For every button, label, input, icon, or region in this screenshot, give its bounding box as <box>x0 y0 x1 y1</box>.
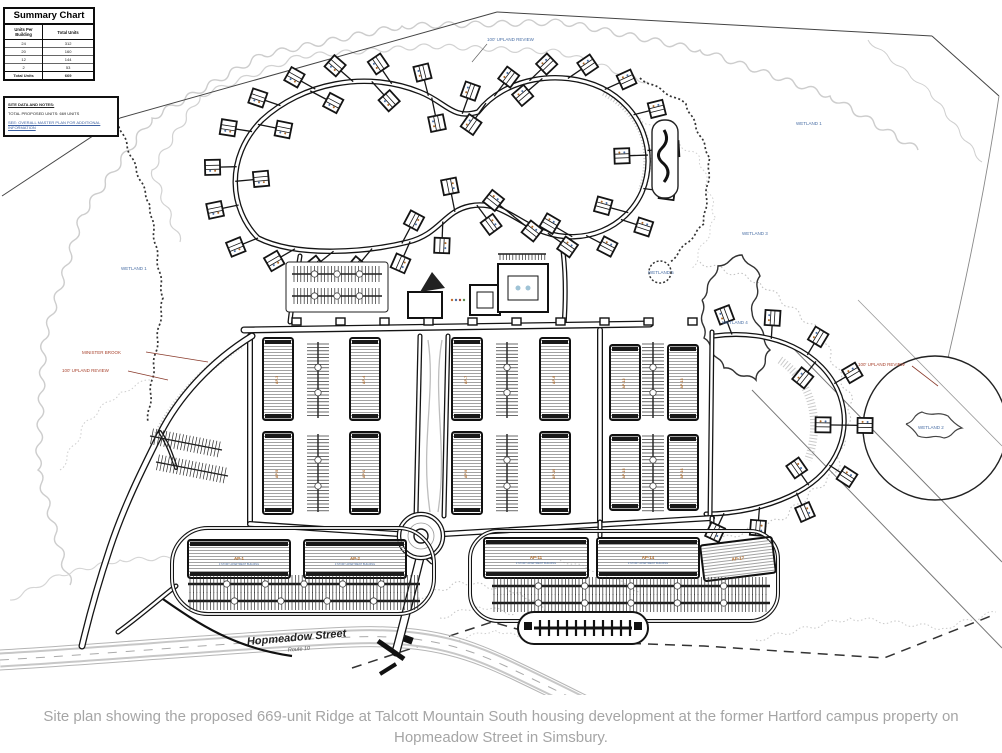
house-footprint <box>634 218 653 237</box>
plan-linework <box>192 436 194 444</box>
plan-linework <box>404 210 424 230</box>
leader-line <box>128 371 168 380</box>
house-footprint <box>275 121 293 139</box>
house-footprint <box>512 85 533 106</box>
main-east-west-road-surface <box>244 324 650 330</box>
plan-linework <box>198 462 200 470</box>
parking-row <box>498 254 546 260</box>
table-cell: 53 <box>43 64 93 72</box>
plan-linework <box>215 466 217 474</box>
plan-linework <box>792 367 813 388</box>
house-footprint <box>413 63 431 81</box>
upland-review-west-label: 100' UPLAND REVIEW <box>62 368 110 373</box>
plan-linework <box>617 70 637 90</box>
apartment-building: AP-4 <box>350 338 380 420</box>
plan-linework <box>170 440 172 448</box>
tree-icon <box>650 457 656 463</box>
property-boundary <box>790 345 1002 562</box>
caption-area: Site plan showing the proposed 669-unit … <box>0 695 1002 753</box>
tree-icon <box>504 483 510 489</box>
tree-icon <box>370 598 376 604</box>
plan-linework <box>599 540 697 544</box>
garage-end <box>524 622 532 630</box>
amenity-lot <box>286 262 388 312</box>
plan-linework <box>670 504 696 508</box>
plan-linework <box>181 459 183 467</box>
house-footprint <box>264 251 284 271</box>
plan-linework <box>454 508 480 512</box>
house-footprint <box>284 67 304 87</box>
col-units-per-building: Units Per Building <box>5 25 43 40</box>
contour-line <box>10 556 170 600</box>
building-sub-label: 3 STORY APARTMENT BUILDING <box>516 561 556 565</box>
plan-linework <box>284 67 304 87</box>
plan-linework <box>612 347 638 351</box>
plan-linework <box>156 462 158 470</box>
plan-linework <box>815 417 830 432</box>
apartment-building: AP-13 <box>668 345 698 420</box>
plan-linework <box>413 63 431 81</box>
plan-linework <box>481 214 502 235</box>
plan-linework <box>614 148 630 164</box>
apartment-building: AP-10 <box>540 432 570 514</box>
parking-row <box>496 342 518 418</box>
plan-linework <box>265 414 291 418</box>
plan-linework <box>206 201 224 219</box>
plan-linework <box>486 540 586 544</box>
plan-linework <box>612 504 638 508</box>
plan-linework <box>169 432 171 440</box>
site-plan-figure: AP-3AP-4AP-5AP-6AP-7AP-8AP-9AP-10AP-12AP… <box>0 0 1002 695</box>
house-footprint <box>795 502 815 522</box>
tree-icon <box>262 581 268 587</box>
garage-end <box>634 622 642 630</box>
tree-icon <box>581 600 587 606</box>
plan-linework <box>205 160 220 175</box>
minister-brook-label: MINISTER BROOK <box>82 350 121 355</box>
plan-linework <box>220 119 237 136</box>
plan-linework <box>323 93 343 113</box>
tree-icon <box>356 271 362 277</box>
turn-lane-mark <box>380 664 396 674</box>
tree-icon <box>301 581 307 587</box>
tree-icon <box>315 483 321 489</box>
plan-linework <box>795 502 815 522</box>
table-cell: 144 <box>43 56 93 64</box>
table-cell: 12 <box>5 56 43 64</box>
house-footprint <box>617 70 637 90</box>
plan-linework <box>166 464 168 472</box>
house-footprint <box>594 197 612 215</box>
plan-linework <box>174 441 176 449</box>
plan-linework <box>182 434 184 442</box>
plan-linework <box>180 467 182 475</box>
building-label: AP-2 <box>350 556 361 561</box>
table-row: 12144 <box>5 56 93 64</box>
plan-linework <box>200 471 202 479</box>
plan-linework <box>215 441 217 449</box>
plan-linework <box>542 340 568 344</box>
tree-icon <box>324 598 330 604</box>
apartment-building: AP-113 STORY APARTMENT BUILDING <box>484 538 588 578</box>
route-10-label: Route 10 <box>288 646 312 654</box>
road-stub <box>556 318 565 325</box>
tree-icon <box>504 364 510 370</box>
amenity-building <box>470 285 500 315</box>
plan-linework <box>185 460 187 468</box>
house-footprint <box>226 237 246 257</box>
plan-linework <box>178 458 180 466</box>
property-boundary <box>932 36 999 96</box>
plan-linework <box>168 456 170 464</box>
plan-linework <box>577 55 598 76</box>
plan-linework <box>187 444 189 452</box>
house-footprint <box>441 178 459 196</box>
house-footprint <box>614 148 630 164</box>
plan-linework <box>211 448 213 456</box>
west-access-road-surface <box>82 336 252 646</box>
plan-linework <box>160 463 162 471</box>
median-landscape <box>427 340 431 512</box>
building-label: AP-7 <box>464 376 468 384</box>
house-footprint <box>368 53 389 74</box>
plan-linework <box>172 432 174 440</box>
plan-linework <box>211 465 213 473</box>
house-footprint <box>323 93 343 113</box>
tree-icon <box>674 600 680 606</box>
upland-review-east-label: 100' UPLAND REVIEW <box>858 362 906 367</box>
plan-linework <box>203 471 205 479</box>
tree-icon <box>720 600 726 606</box>
apartment-building: AP-3 <box>263 338 293 420</box>
apartment-building: AP-6 <box>350 432 380 514</box>
plan-linework <box>205 464 207 472</box>
plan-key-dot <box>455 299 457 301</box>
tree-icon <box>535 583 541 589</box>
table-cell: 2 <box>5 64 43 72</box>
plan-notes-box: SITE DATA AND NOTES:TOTAL PROPOSED UNITS… <box>3 96 119 137</box>
building-label: AP-16 <box>680 468 684 478</box>
tree-icon <box>504 389 510 395</box>
tree-icon <box>504 457 510 463</box>
plan-linework <box>441 178 459 196</box>
tree-icon <box>356 293 362 299</box>
plan-linework <box>180 442 182 450</box>
building-label: AP-6 <box>362 470 366 478</box>
plan-linework <box>189 436 191 444</box>
plan-linework <box>265 434 291 438</box>
building-sub-label: 3 STORY APARTMENT BUILDING <box>219 562 259 566</box>
plan-linework <box>221 467 223 475</box>
figure-caption: Site plan showing the proposed 669-unit … <box>36 706 966 748</box>
house-footprint <box>205 160 220 175</box>
plan-linework <box>597 236 617 256</box>
property-boundary <box>752 390 1002 648</box>
plan-linework <box>352 508 378 512</box>
building-label: AP-3 <box>275 376 279 384</box>
plan-linework <box>542 414 568 418</box>
plan-linework <box>486 572 586 576</box>
house-footprint <box>815 417 830 432</box>
road-stub <box>336 318 345 325</box>
plan-linework <box>213 473 215 481</box>
building-sub-label: 3 STORY APARTMENT BUILDING <box>628 561 668 565</box>
plan-linework <box>194 445 196 453</box>
apartment-building: AP-16 <box>668 435 698 510</box>
house-footprint <box>253 171 269 187</box>
plan-linework <box>205 439 207 447</box>
contour-line <box>700 262 852 540</box>
plan-linework <box>226 237 246 257</box>
plan-linework <box>190 542 288 546</box>
plan-linework <box>352 340 378 344</box>
tree-icon <box>628 583 634 589</box>
total-value: 669 <box>43 72 93 80</box>
tree-icon <box>378 581 384 587</box>
tree-icon <box>334 293 340 299</box>
clubhouse-roof <box>420 272 445 292</box>
plan-linework <box>206 472 208 480</box>
leader-line <box>146 352 208 362</box>
house-footprint <box>428 114 446 132</box>
tree-icon <box>650 483 656 489</box>
plan-linework <box>368 53 389 74</box>
building-label: AP-8 <box>552 376 556 384</box>
house-footprint <box>577 55 598 76</box>
house-footprint <box>481 214 502 235</box>
plan-linework <box>265 508 291 512</box>
parking-row <box>492 594 770 612</box>
plan-linework <box>306 572 404 576</box>
house-footprint <box>220 119 237 136</box>
house-footprint <box>837 466 858 487</box>
apartment-building: AP-13 STORY APARTMENT BUILDING <box>188 540 290 578</box>
plan-linework <box>179 434 181 442</box>
plan-linework <box>214 449 216 457</box>
site-plan-svg: AP-3AP-4AP-5AP-6AP-7AP-8AP-9AP-10AP-12AP… <box>0 0 1002 695</box>
plan-linework <box>184 443 186 451</box>
summary-chart-table: Units Per Building Total Units 243122016… <box>5 25 93 79</box>
house-footprint <box>857 418 872 433</box>
upland-review-north-label: 100' UPLAND REVIEW <box>487 37 535 42</box>
contour-line <box>60 380 150 470</box>
tree-icon <box>315 364 321 370</box>
plan-linework <box>199 438 201 446</box>
house-footprint <box>461 114 482 135</box>
plan-linework <box>223 475 225 483</box>
road-stub <box>600 318 609 325</box>
table-row: 24312 <box>5 40 93 48</box>
plan-linework <box>808 327 829 348</box>
plan-linework <box>186 468 188 476</box>
plan-linework <box>190 469 192 477</box>
table-row: 253 <box>5 64 93 72</box>
plan-linework <box>161 455 163 463</box>
parking-row <box>307 342 329 418</box>
lot-connector-surface <box>118 586 176 632</box>
plan-linework <box>197 445 199 453</box>
building-label: AP-10 <box>552 469 556 479</box>
parking-row <box>188 592 420 610</box>
plan-linework <box>265 340 291 344</box>
plan-linework <box>225 468 227 476</box>
road-stub <box>468 318 477 325</box>
plan-linework <box>185 435 187 443</box>
road-stub <box>380 318 389 325</box>
col-total-units: Total Units <box>43 25 93 40</box>
tree-icon <box>231 598 237 604</box>
road-stub <box>644 318 653 325</box>
plan-linework <box>158 455 160 463</box>
tree-icon <box>311 293 317 299</box>
plan-linework <box>612 437 638 441</box>
plan-linework <box>306 542 404 546</box>
wetland-5-label: WETLAND 5 <box>648 270 674 275</box>
building-label: AP-15 <box>622 468 626 478</box>
plan-linework <box>454 434 480 438</box>
plan-linework <box>670 437 696 441</box>
plan-linework <box>461 114 482 135</box>
median-landscape <box>438 340 442 512</box>
table-cell: 160 <box>43 48 93 56</box>
parking-row <box>156 455 228 484</box>
wetland-1-west-label: WETLAND 1 <box>121 266 147 271</box>
wetland-1-east-label: WETLAND 1 <box>796 121 822 126</box>
table-cell: 312 <box>43 40 93 48</box>
table-total-row: Total Units 669 <box>5 72 93 80</box>
tree-icon <box>311 271 317 277</box>
plan-linework <box>275 121 293 139</box>
plan-linework <box>428 114 446 132</box>
wetland-2-label: WETLAND 2 <box>918 425 944 430</box>
plan-linework <box>210 473 212 481</box>
tree-icon <box>339 581 345 587</box>
building-label: AP-12 <box>622 378 626 388</box>
apartment-building-rotated: AP-17 <box>700 537 776 582</box>
house-footprint <box>248 88 267 107</box>
summary-chart: Summary Chart Units Per Building Total U… <box>3 7 95 81</box>
plan-linework <box>391 253 411 273</box>
tree-icon <box>628 600 634 606</box>
plan-linework <box>177 442 179 450</box>
tree-icon <box>278 598 284 604</box>
plan-linework <box>193 470 195 478</box>
plan-linework <box>190 444 192 452</box>
building-label: AP-4 <box>362 376 366 384</box>
plan-linework <box>201 463 203 471</box>
building-label: AP-14 <box>642 555 655 560</box>
plan-linework <box>857 418 872 433</box>
contour-line <box>756 612 996 641</box>
plan-linework <box>648 100 666 118</box>
plan-linework <box>191 461 193 469</box>
building-label: AP-1 <box>234 556 245 561</box>
plan-linework <box>670 347 696 351</box>
tree-icon <box>334 271 340 277</box>
plan-linework <box>217 449 219 457</box>
tree-icon <box>720 583 726 589</box>
plan-linework <box>218 466 220 474</box>
apartment-building: AP-12 <box>610 345 640 420</box>
plan-linework <box>219 442 221 450</box>
contour-line <box>151 44 648 242</box>
plan-linework <box>599 572 697 576</box>
tree-icon <box>535 600 541 606</box>
house-footprint <box>597 236 617 256</box>
apartment-building: AP-5 <box>263 432 293 514</box>
plan-linework <box>542 434 568 438</box>
west-access-road <box>82 336 252 646</box>
building-label: AP-5 <box>275 470 279 478</box>
parking-row <box>307 434 329 512</box>
apartment-building: AP-8 <box>540 338 570 420</box>
plan-linework <box>212 440 214 448</box>
house-footprint <box>808 327 829 348</box>
house-footprint <box>434 238 450 254</box>
parking-row <box>642 342 664 418</box>
plan-key-dot <box>451 299 453 301</box>
house-footprint <box>792 367 813 388</box>
plan-linework <box>196 470 198 478</box>
house-footprint <box>765 310 781 326</box>
plan-key-dot <box>463 299 465 301</box>
property-boundary <box>948 96 999 358</box>
plan-linework <box>837 466 858 487</box>
plan-linework <box>195 437 197 445</box>
plan-linework <box>542 508 568 512</box>
tree-icon <box>315 457 321 463</box>
building-label: AP-13 <box>680 378 684 388</box>
plan-linework <box>253 171 269 187</box>
plan-linework <box>175 433 177 441</box>
plan-linework <box>670 414 696 418</box>
apartment-building: AP-7 <box>452 338 482 420</box>
plan-linework <box>170 465 172 473</box>
apartment-building: AP-15 <box>610 435 640 510</box>
tree-icon <box>315 389 321 395</box>
house-footprint <box>786 458 807 479</box>
plan-linework <box>352 414 378 418</box>
plan-linework <box>208 464 210 472</box>
plan-linework <box>264 251 284 271</box>
plan-linework <box>434 238 450 254</box>
plan-linework <box>188 460 190 468</box>
plan-linework <box>165 431 167 439</box>
table-cell: 20 <box>5 48 43 56</box>
house-footprint <box>206 201 224 219</box>
parking-row <box>496 434 518 512</box>
plan-linework <box>220 475 222 483</box>
road-stub <box>292 318 301 325</box>
apartment-building: AP-23 STORY APARTMENT BUILDING <box>304 540 406 578</box>
plan-linework <box>207 447 209 455</box>
plan-linework <box>190 572 288 576</box>
plan-linework-layer: AP-3AP-4AP-5AP-6AP-7AP-8AP-9AP-10AP-12AP… <box>0 12 1002 695</box>
apartment-building: AP-143 STORY APARTMENT BUILDING <box>597 538 699 578</box>
total-label: Total Units <box>5 72 43 80</box>
tree-icon <box>650 389 656 395</box>
clubhouse <box>408 292 442 318</box>
parking-row <box>642 434 664 512</box>
road-stub <box>424 318 433 325</box>
tree-icon <box>581 583 587 589</box>
building-label: AP-9 <box>464 470 468 478</box>
tree-icon <box>674 583 680 589</box>
page: AP-3AP-4AP-5AP-6AP-7AP-8AP-9AP-10AP-12AP… <box>0 0 1002 753</box>
table-row: 20160 <box>5 48 93 56</box>
wetland-4-label: WETLAND 4 <box>722 320 748 325</box>
house-footprint <box>391 253 411 273</box>
